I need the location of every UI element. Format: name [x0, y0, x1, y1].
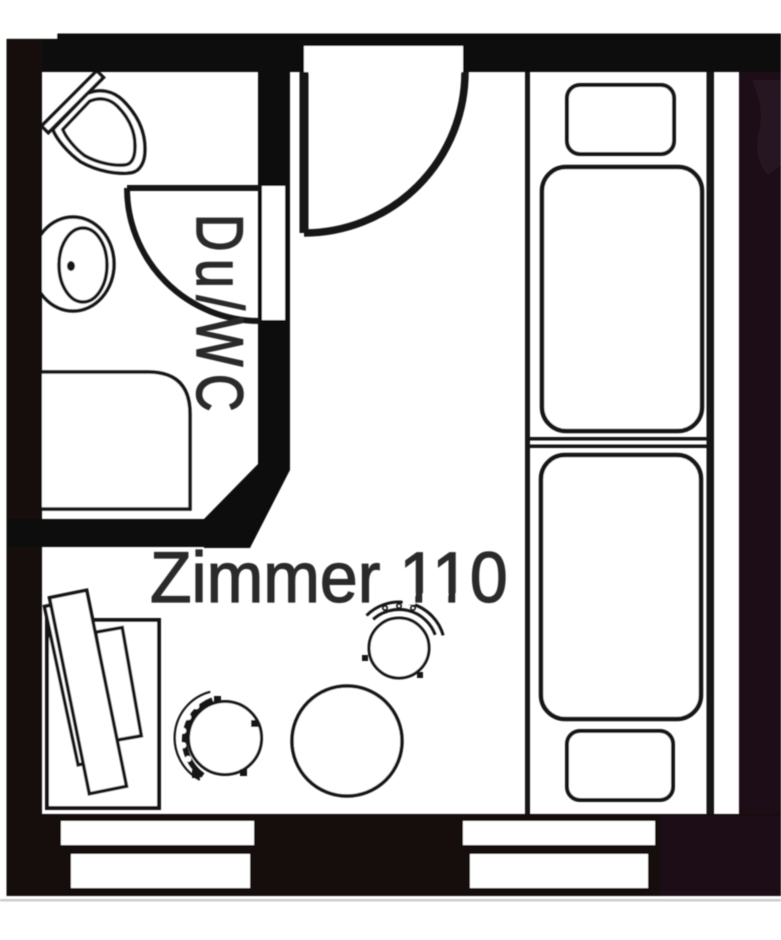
svg-text:Zimmer 110: Zimmer 110	[150, 537, 508, 617]
svg-text:Du/WC: Du/WC	[183, 214, 257, 419]
